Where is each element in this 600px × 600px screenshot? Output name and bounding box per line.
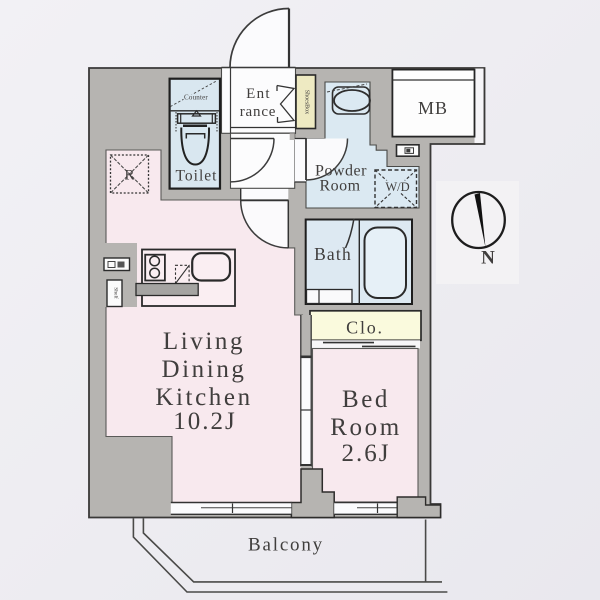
svg-text:rance: rance xyxy=(240,104,276,120)
svg-text:10.2J: 10.2J xyxy=(173,408,236,435)
svg-text:Dining: Dining xyxy=(161,356,246,383)
svg-text:2.6J: 2.6J xyxy=(342,440,391,467)
svg-text:R: R xyxy=(124,168,134,184)
svg-text:MB: MB xyxy=(418,98,448,118)
svg-text:Room: Room xyxy=(319,178,360,195)
svg-text:N: N xyxy=(481,248,495,269)
svg-text:Toilet: Toilet xyxy=(176,168,218,185)
svg-text:Ent: Ent xyxy=(246,86,271,102)
svg-text:Living: Living xyxy=(163,328,245,355)
svg-text:W/D: W/D xyxy=(385,180,409,194)
svg-text:Shelf: Shelf xyxy=(113,287,120,299)
svg-text:Bath: Bath xyxy=(314,244,352,264)
svg-text:ShoesBox: ShoesBox xyxy=(304,90,310,114)
svg-text:Counter: Counter xyxy=(184,94,208,102)
svg-text:Clo.: Clo. xyxy=(346,318,384,338)
svg-text:Room: Room xyxy=(330,414,402,441)
svg-text:Balcony: Balcony xyxy=(248,535,324,556)
svg-text:Kitchen: Kitchen xyxy=(155,384,252,411)
svg-text:Bed: Bed xyxy=(342,386,390,413)
